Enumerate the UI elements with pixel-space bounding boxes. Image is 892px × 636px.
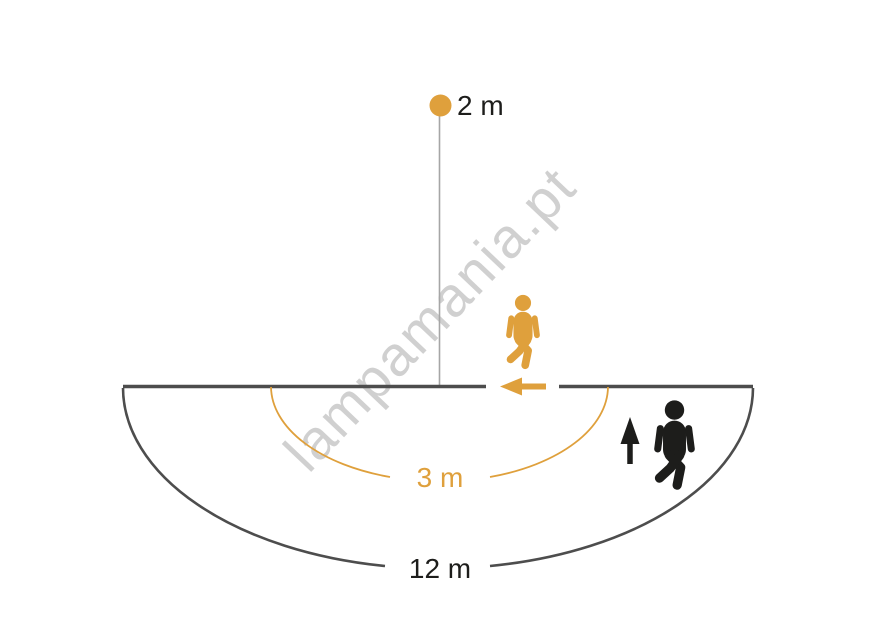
arrow-up-head [621,417,640,444]
radial-walker-silhouette [658,400,692,485]
outer-range-label: 12 m [409,553,471,584]
sensor-range-diagram-page: lampamania.pt 2 m 12 m 3 m [0,0,892,636]
tangential-walker-silhouette [509,295,537,365]
arrow-up-stroke-group [621,417,640,464]
walk-direction-arrow-up-icon [621,417,640,464]
arrow-left-stroke-group [500,378,546,396]
walk-direction-arrow-left-icon [500,378,546,396]
radial-walker-icon [658,400,692,485]
arrow-left-head [500,378,522,396]
tangential-walker-stroke-group [509,295,537,365]
sensor-dot-icon [430,95,452,117]
inner-range-label: 3 m [417,462,464,493]
tangential-walker-icon [509,295,537,365]
inner-range-arc-right [490,387,608,477]
watermark-text: lampamania.pt [272,154,588,483]
mount-height-label: 2 m [457,90,504,121]
radial-walker-stroke-group [658,400,692,485]
sensor-range-diagram: lampamania.pt 2 m 12 m 3 m [0,0,892,636]
outer-range-arc-right [490,388,753,566]
